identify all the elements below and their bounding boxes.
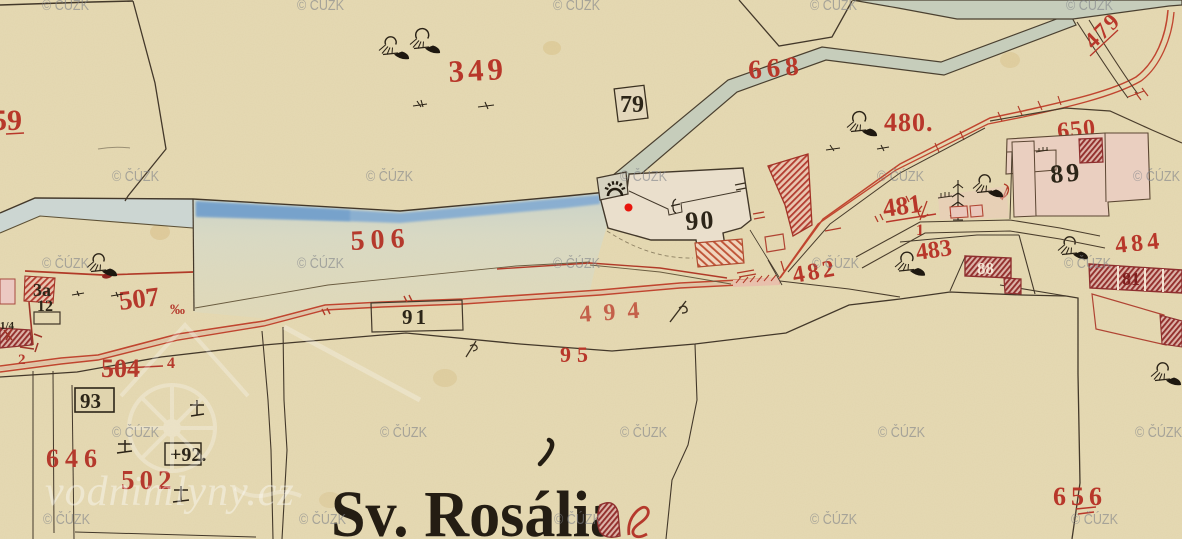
- svg-text:vodnimlyny.cz: vodnimlyny.cz: [45, 469, 295, 515]
- svg-text:79: 79: [620, 92, 644, 118]
- svg-text:© ČÚZK: © ČÚZK: [297, 255, 344, 272]
- svg-text:© ČÚZK: © ČÚZK: [1135, 424, 1182, 441]
- svg-text:© ČÚZK: © ČÚZK: [553, 0, 600, 14]
- svg-text:© ČÚZK: © ČÚZK: [42, 255, 89, 272]
- svg-text:81: 81: [1122, 269, 1140, 289]
- svg-text:483: 483: [914, 235, 953, 266]
- svg-text:91: 91: [402, 305, 429, 329]
- svg-text:494: 494: [579, 297, 653, 328]
- svg-text:Sv. Rosália: Sv. Rosália: [331, 478, 621, 539]
- svg-text:© ČÚZK: © ČÚZK: [877, 168, 924, 185]
- svg-text:59: 59: [0, 104, 22, 137]
- svg-text:© ČÚZK: © ČÚZK: [43, 511, 90, 528]
- svg-text:668: 668: [747, 50, 805, 85]
- svg-text:© ČÚZK: © ČÚZK: [1064, 255, 1111, 272]
- svg-text:93: 93: [80, 389, 101, 413]
- svg-text:© ČÚZK: © ČÚZK: [299, 511, 346, 528]
- svg-text:© ČÚZK: © ČÚZK: [112, 424, 159, 441]
- svg-text:506: 506: [350, 223, 412, 257]
- svg-text:90: 90: [684, 205, 716, 236]
- svg-text:© ČÚZK: © ČÚZK: [1066, 0, 1113, 14]
- svg-text:© ČÚZK: © ČÚZK: [810, 511, 857, 528]
- svg-text:656: 656: [1053, 482, 1107, 511]
- svg-text:89: 89: [1049, 157, 1083, 189]
- svg-text:© ČÚZK: © ČÚZK: [810, 0, 857, 14]
- svg-text:481: 481: [881, 189, 924, 223]
- svg-text:3a: 3a: [33, 280, 51, 300]
- svg-text:© ČÚZK: © ČÚZK: [553, 255, 600, 272]
- svg-text:484: 484: [1114, 228, 1164, 259]
- svg-text:‰: ‰: [170, 302, 185, 318]
- svg-text:© ČÚZK: © ČÚZK: [554, 511, 601, 528]
- svg-text:349: 349: [448, 51, 508, 89]
- svg-text:© ČÚZK: © ČÚZK: [1071, 511, 1118, 528]
- svg-text:1/4: 1/4: [0, 320, 15, 332]
- svg-text:1: 1: [916, 222, 924, 239]
- svg-text:© ČÚZK: © ČÚZK: [366, 168, 413, 185]
- svg-text:© ČÚZK: © ČÚZK: [1133, 168, 1180, 185]
- svg-text:© ČÚZK: © ČÚZK: [380, 424, 427, 441]
- svg-text:2: 2: [18, 352, 26, 368]
- svg-text:© ČÚZK: © ČÚZK: [620, 424, 667, 441]
- svg-text:88: 88: [977, 259, 994, 278]
- svg-text:© ČÚZK: © ČÚZK: [42, 0, 89, 14]
- svg-text:© ČÚZK: © ČÚZK: [812, 255, 859, 272]
- svg-text:© ČÚZK: © ČÚZK: [112, 168, 159, 185]
- svg-text:507: 507: [117, 281, 161, 316]
- svg-text:© ČÚZK: © ČÚZK: [620, 168, 667, 185]
- svg-text:480.: 480.: [884, 108, 934, 137]
- svg-text:4: 4: [167, 355, 175, 372]
- svg-text:95: 95: [560, 342, 594, 367]
- svg-text:© ČÚZK: © ČÚZK: [878, 424, 925, 441]
- svg-text:© ČÚZK: © ČÚZK: [297, 0, 344, 14]
